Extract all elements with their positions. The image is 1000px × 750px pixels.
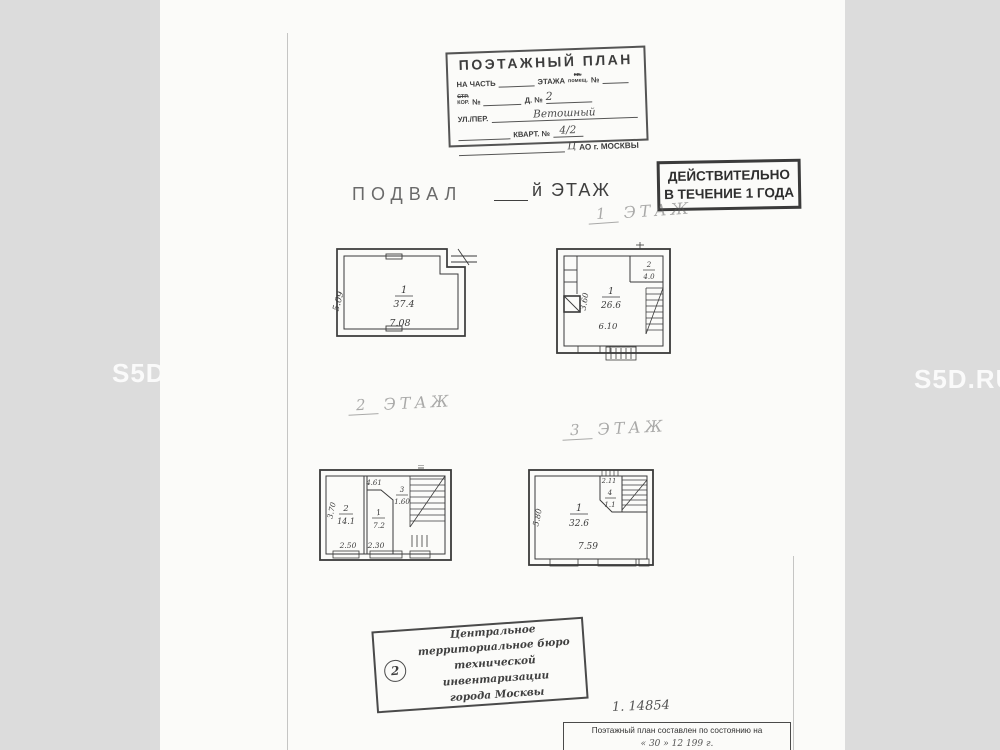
label-basement-floor-suffix: й ЭТАЖ — [494, 180, 611, 201]
label-house-no: Д. № — [524, 95, 542, 105]
scanned-floorplan-page: S5D.RU S5D.RU ПОЭТАЖНЫЙ ПЛАН НА ЧАСТЬ ЭТ… — [0, 0, 1000, 750]
street-line: Ветошный — [491, 104, 638, 122]
floor2-number: 2 — [348, 395, 379, 416]
fold-line-right — [793, 556, 794, 750]
floor2-roomC-area: 1.60 — [394, 498, 410, 506]
basement-room-area: 37.4 — [393, 299, 414, 310]
floor3-height-dim: 5.80 — [531, 508, 544, 527]
bureau-stamp-number: 2 — [383, 659, 406, 682]
floor1-room-number: 1 — [608, 286, 614, 297]
floor2-top-dim: 4.61 — [365, 479, 382, 487]
label-kor: КОР. — [457, 100, 469, 106]
label-street: УЛ./ПЕР. — [458, 114, 489, 124]
floor3-room2-label: 4 1.1 — [604, 489, 616, 509]
blank-line — [483, 95, 521, 105]
basement-floor-plan: 1 37.4 7.08 5.09 — [328, 240, 480, 344]
okrug-hand-letter: Ц — [567, 141, 576, 152]
kvartal-line: 4/2 — [553, 123, 583, 137]
floor1-height-dim: 3.60 — [579, 292, 591, 311]
label-pomesh: помещ. — [568, 78, 588, 84]
floor2-roomA-label: 2 14.1 — [337, 504, 355, 526]
floor2-roomC-number: 3 — [400, 486, 405, 494]
footer-line2: « 30 » 12 199 г. — [566, 739, 788, 749]
floor3-word: ЭТАЖ — [597, 416, 667, 439]
blank-line — [458, 130, 510, 141]
label-etazha: ЭТАЖА — [537, 76, 565, 86]
footer-hand-note: 1. 14854 — [612, 698, 670, 715]
floor1-stairs — [646, 288, 663, 334]
label-basement: ПОДВАЛ — [352, 184, 462, 205]
blank-line — [498, 77, 534, 87]
floor1-room-area: 26.6 — [600, 301, 621, 311]
floor2-roomC-label: 3 1.60 — [394, 486, 410, 506]
label-kv-pomesh: кв. помещ. — [568, 73, 588, 85]
floor3-room-area: 32.6 — [569, 519, 589, 529]
floor3-number: 3 — [562, 420, 593, 441]
bureau-stamp-text: Центральное территориальное бюро техниче… — [407, 619, 582, 709]
floor3-width-dim: 7.59 — [578, 542, 598, 552]
kvartal-value: 4/2 — [559, 124, 576, 137]
floor2-roomB-area: 7.2 — [373, 521, 385, 530]
stamp-row-street: УЛ./ПЕР. Ветошный — [457, 104, 637, 123]
floor1-number: 1 — [587, 204, 618, 225]
basement-width-dim: 7.08 — [389, 318, 410, 329]
floor1-room2-label: 2 4.0 — [642, 261, 655, 281]
floor2-bottom-dim1: 2.50 — [339, 541, 357, 550]
label-na-chast: НА ЧАСТЬ — [456, 78, 495, 88]
house-number-line: 2 — [545, 88, 591, 104]
floor2-roomB-number: 1 — [376, 508, 382, 518]
label-no: № — [591, 75, 600, 84]
floor2-roomB-label: 1 7.2 — [372, 508, 385, 530]
floor2-stairs — [410, 476, 445, 547]
floor2-roomA-area: 14.1 — [337, 517, 355, 526]
house-number-value: 2 — [545, 89, 552, 102]
basement-room-number: 1 — [401, 285, 407, 296]
floor3-room2-area: 1.1 — [604, 501, 615, 509]
label-str-kor: СТР. КОР. — [457, 95, 469, 107]
label-floor-suffix-text: й ЭТАЖ — [532, 180, 611, 201]
floor3-room2-number: 4 — [607, 489, 612, 497]
stamp-row-kvartal: КВАРТ. № 4/2 — [458, 121, 638, 140]
document-title: ПОЭТАЖНЫЙ ПЛАН — [456, 51, 636, 73]
floor1-width-dim: 6.10 — [599, 322, 619, 332]
floor3-room-label: 1 32.6 — [569, 503, 589, 529]
floor2-roomA-number: 2 — [342, 504, 348, 514]
label-kvartal: КВАРТ. № — [513, 128, 550, 138]
footer-line1: Поэтажный план составлен по состоянию на — [566, 726, 788, 735]
floor3-top-dim: 2.11 — [601, 477, 616, 485]
header-stamp: ПОЭТАЖНЫЙ ПЛАН НА ЧАСТЬ ЭТАЖА кв. помещ.… — [445, 46, 648, 148]
basement-room-label: 1 37.4 — [393, 285, 414, 310]
floor2-bottom-dim2: 2.30 — [367, 541, 385, 550]
floor1-room2-number: 2 — [646, 261, 652, 269]
fold-line-left — [287, 33, 288, 750]
stamp-row-building: СТР. КОР. № Д. № 2 — [457, 86, 637, 106]
floor3-room-number: 1 — [576, 503, 582, 514]
label-no: № — [472, 97, 481, 106]
floor1-room1-label: 1 26.6 — [600, 286, 621, 311]
floor3-plan: 2.11 4 1.1 1 32.6 7.59 5.80 — [522, 466, 660, 572]
floor3-stairs — [622, 480, 647, 510]
watermark-right: S5D.RU — [914, 364, 1000, 395]
street-value: Ветошный — [533, 106, 596, 120]
stamp-row-part: НА ЧАСТЬ ЭТАЖА кв. помещ. № — [456, 71, 636, 89]
floor1-closets — [564, 256, 580, 312]
floor2-plan: 2 14.1 1 7.2 3 1.60 4.61 3.70 2.50 2.30 — [315, 465, 455, 565]
blank-line — [602, 74, 628, 84]
blank-line — [494, 186, 528, 201]
floor1-plan: 2 4.0 1 26.6 6.10 3.60 — [548, 238, 676, 364]
bureau-stamp: 2 Центральное территориальное бюро техни… — [371, 617, 588, 714]
floor2-word: ЭТАЖ — [383, 391, 453, 414]
footer-box: Поэтажный план составлен по состоянию на… — [563, 722, 791, 750]
floor1-room2-area: 4.0 — [642, 273, 655, 281]
floor2-height-dim: 3.70 — [325, 501, 337, 519]
